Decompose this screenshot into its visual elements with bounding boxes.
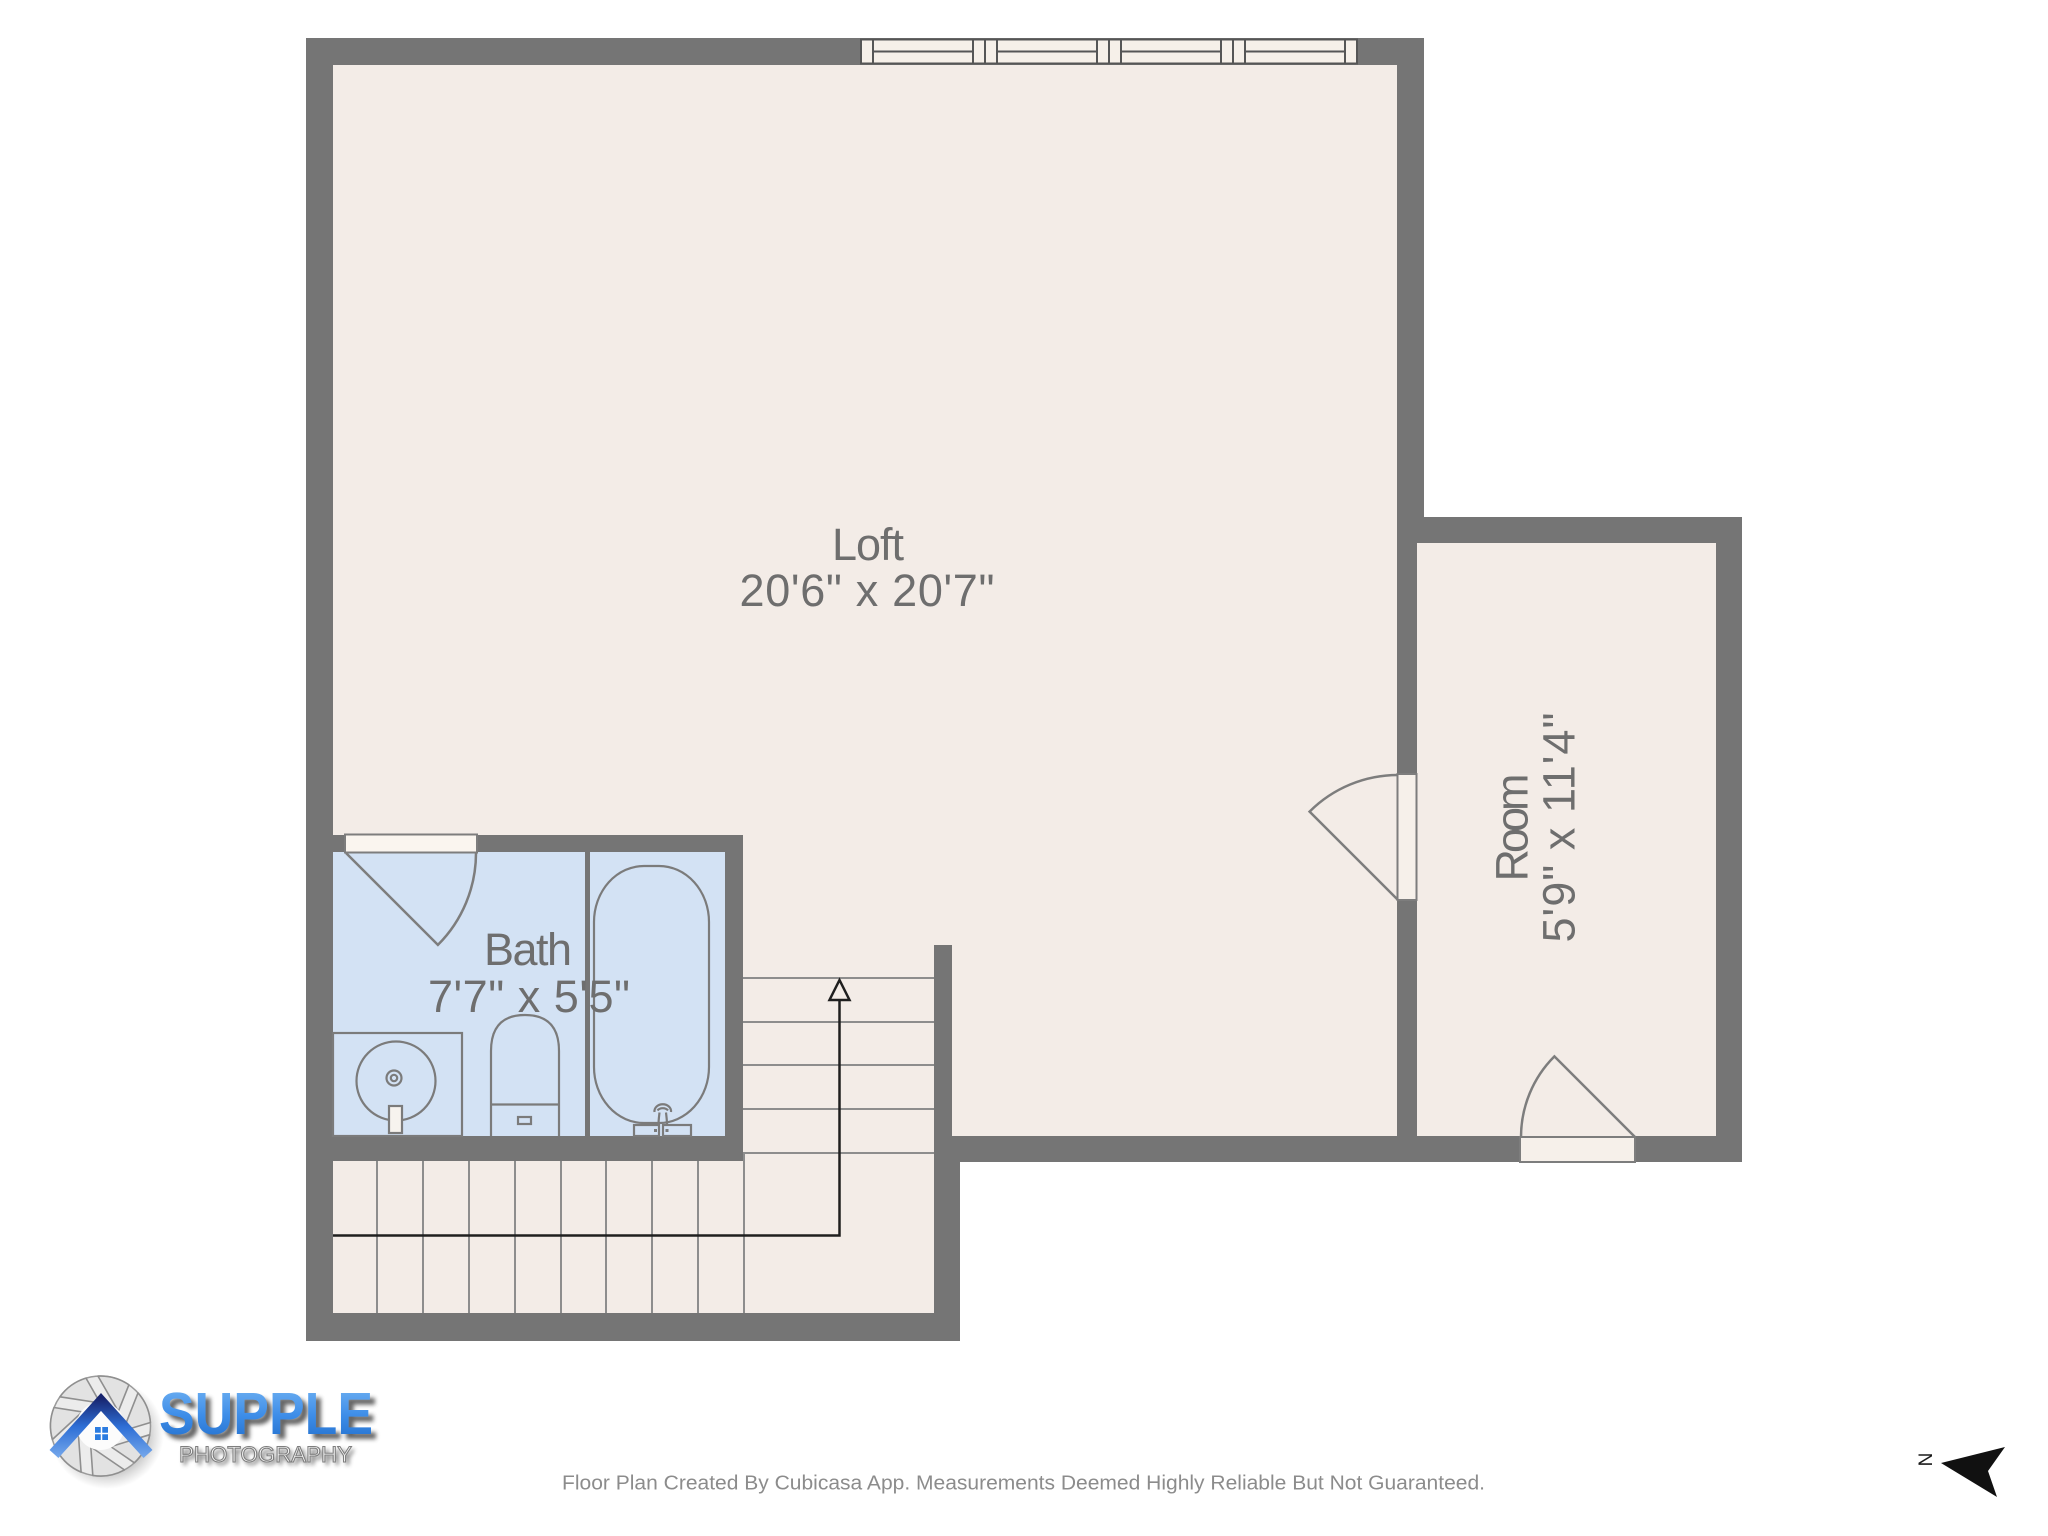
svg-text:Loft: Loft [832,519,904,570]
svg-text:SUPPLE: SUPPLE [159,1381,373,1447]
svg-text:Room: Room [1487,774,1538,882]
svg-text:Floor Plan Created By Cubicasa: Floor Plan Created By Cubicasa App. Meas… [562,1472,1485,1495]
svg-text:20'6" x 20'7": 20'6" x 20'7" [740,565,995,616]
svg-text:5'9" x 11'4": 5'9" x 11'4" [1534,713,1585,943]
svg-text:Bath: Bath [484,924,572,975]
svg-text:7'7" x 5'5": 7'7" x 5'5" [428,971,630,1022]
svg-text:PHOTOGRAPHY: PHOTOGRAPHY [179,1442,352,1467]
svg-text:N: N [1916,1453,1937,1467]
